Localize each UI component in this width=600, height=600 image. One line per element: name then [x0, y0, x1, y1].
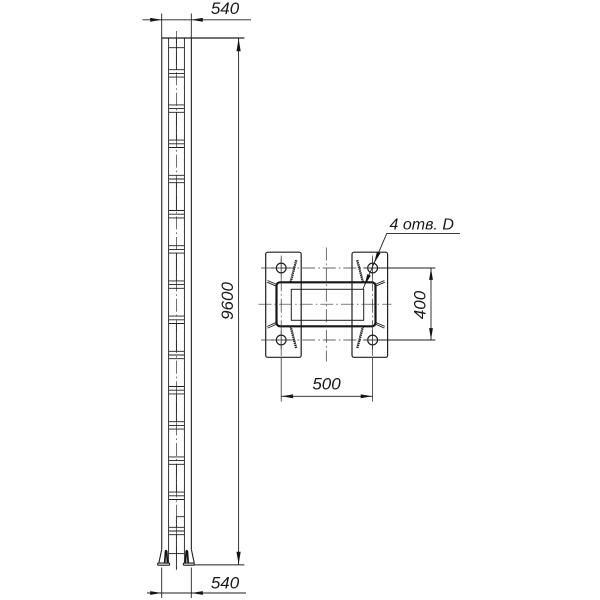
svg-text:500: 500: [312, 375, 341, 394]
svg-text:540: 540: [211, 0, 240, 18]
svg-text:400: 400: [411, 290, 430, 319]
svg-text:4 отв. D: 4 отв. D: [390, 217, 455, 234]
svg-text:9600: 9600: [218, 282, 237, 320]
svg-text:540: 540: [211, 574, 240, 593]
